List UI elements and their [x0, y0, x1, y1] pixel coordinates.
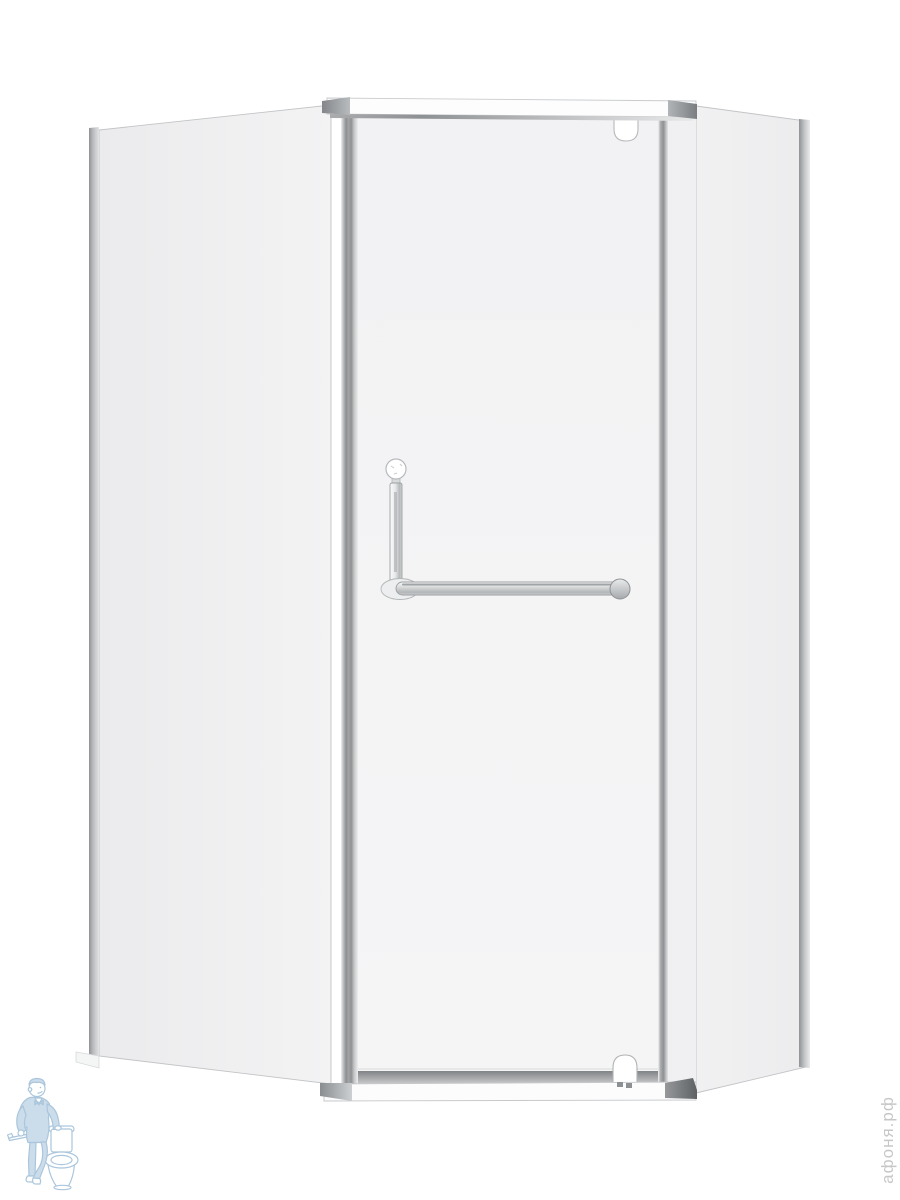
bottom-pivot-block: [617, 1082, 623, 1087]
left-glass: [99, 105, 331, 1084]
front-face: [320, 97, 697, 1101]
top-pivot-hinge: [614, 117, 638, 141]
top-left-cap: [322, 97, 350, 115]
left-side-panel: [76, 105, 331, 1084]
shower-enclosure-illustration: [0, 0, 900, 1200]
bottom-sill: [324, 1082, 696, 1101]
store-watermark-text: афоня.рф: [878, 1096, 898, 1184]
bottom-pivot-block: [626, 1083, 632, 1088]
tube-top-shade: [402, 584, 612, 586]
handle-end-cap: [610, 579, 630, 599]
left-edge-profile: [89, 127, 99, 1056]
door-left-profile: [341, 112, 358, 1087]
right-edge-profile: [799, 119, 810, 1068]
toilet-drawing: [45, 1126, 78, 1190]
right-side-panel: [696, 106, 810, 1093]
top-bar: [327, 98, 696, 117]
product-photo: афоня.рф: [0, 0, 900, 1200]
bottom-pivot-hinge: [613, 1055, 637, 1083]
plumber-logo-watermark: [6, 1076, 86, 1194]
tube-reflection: [394, 492, 397, 572]
right-glass: [696, 106, 806, 1093]
door-right-profile: [658, 116, 668, 1084]
front-fixed-glass: [668, 117, 696, 1083]
handle-top-knob: [386, 459, 406, 479]
